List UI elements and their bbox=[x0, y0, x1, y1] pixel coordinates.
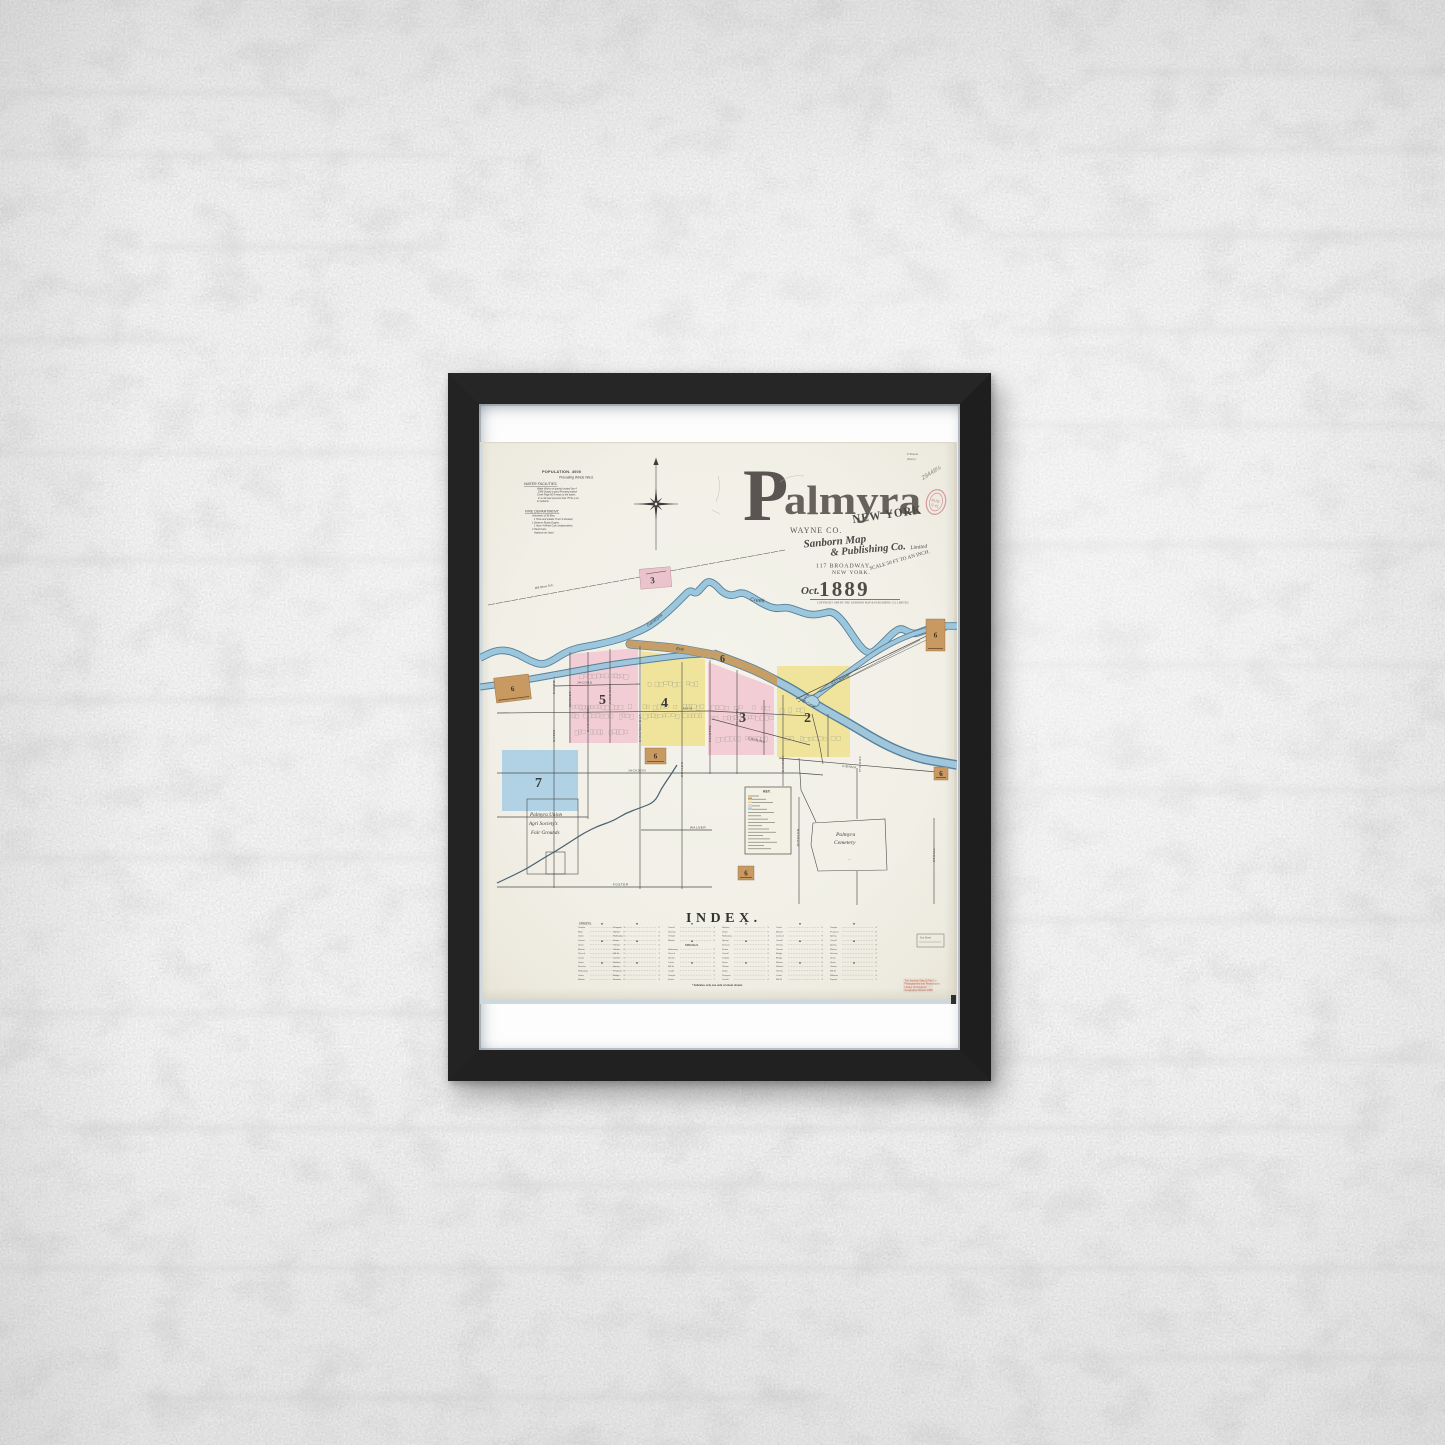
svg-text:FOSTER: FOSTER bbox=[613, 883, 629, 887]
svg-text:Clinton: Clinton bbox=[722, 965, 730, 968]
svg-text:Erie: Erie bbox=[676, 646, 685, 652]
svg-text:Stuart: Stuart bbox=[613, 939, 619, 942]
svg-text:Geography Division 1950: Geography Division 1950 bbox=[905, 989, 934, 992]
svg-text:COPYRIGHT 1889 BY THE SANBORN: COPYRIGHT 1889 BY THE SANBORN MAP & PUBL… bbox=[817, 602, 909, 605]
svg-text:Canal: Canal bbox=[776, 927, 782, 929]
svg-text:Union: Union bbox=[830, 962, 836, 964]
svg-text:MARKET: MARKET bbox=[568, 691, 572, 707]
svg-text:Williams: Williams bbox=[830, 975, 839, 977]
svg-text:Vienna: Vienna bbox=[776, 949, 784, 951]
svg-text:Prospect: Prospect bbox=[830, 930, 839, 933]
svg-text:Carroll: Carroll bbox=[776, 939, 783, 942]
svg-text:Cemetery: Cemetery bbox=[834, 840, 856, 846]
svg-text:6: 6 bbox=[720, 654, 725, 665]
svg-text:Spring: Spring bbox=[830, 935, 837, 938]
svg-text:Vienna: Vienna bbox=[613, 944, 621, 946]
svg-text:POPULATION. 4000: POPULATION. 4000 bbox=[542, 469, 581, 474]
svg-text:Market: Market bbox=[578, 948, 585, 951]
svg-text:CANANDAIGUA: CANANDAIGUA bbox=[638, 713, 642, 742]
svg-text:JACOBS: JACOBS bbox=[577, 681, 592, 685]
svg-text:CHURCH: CHURCH bbox=[781, 756, 785, 772]
svg-text:FAYETTE: FAYETTE bbox=[708, 725, 712, 742]
svg-text:Hathaway: Hathaway bbox=[668, 948, 679, 951]
svg-text:Market: Market bbox=[668, 939, 675, 942]
svg-text:117 BROADWAY: 117 BROADWAY bbox=[816, 564, 870, 570]
svg-text:Carroll: Carroll bbox=[613, 957, 620, 960]
svg-text:Gates: Gates bbox=[578, 935, 585, 938]
svg-text:Bridge: Bridge bbox=[613, 974, 620, 977]
svg-text:Union: Union bbox=[578, 944, 584, 946]
svg-text:Carroll: Carroll bbox=[722, 952, 729, 955]
svg-text:Temple: Temple bbox=[578, 927, 586, 929]
svg-text:KEY.: KEY. bbox=[763, 790, 771, 794]
svg-text:Gates: Gates bbox=[578, 961, 585, 964]
svg-text:Hydrants etc hand.: Hydrants etc hand. bbox=[534, 532, 554, 535]
svg-text:6: 6 bbox=[654, 753, 658, 761]
svg-text:Carroll: Carroll bbox=[722, 978, 729, 981]
svg-text:Market: Market bbox=[776, 961, 783, 964]
svg-text:Prospect: Prospect bbox=[613, 926, 622, 929]
svg-text:Bridge: Bridge bbox=[776, 957, 783, 960]
svg-text:Mill St: Mill St bbox=[668, 965, 674, 968]
svg-text:P: P bbox=[743, 455, 788, 537]
svg-text:7: 7 bbox=[535, 776, 542, 791]
svg-text:WASHINGTON: WASHINGTON bbox=[586, 706, 590, 732]
svg-text:FIRE DEPARTMENT.: FIRE DEPARTMENT. bbox=[525, 510, 559, 514]
svg-text:SPECIALS.: SPECIALS. bbox=[685, 943, 699, 947]
svg-text:Foster: Foster bbox=[668, 978, 674, 981]
svg-text:—: — bbox=[847, 857, 851, 861]
svg-text:Canal: Canal bbox=[776, 975, 782, 977]
svg-text:Division: Division bbox=[668, 931, 676, 933]
svg-text:1889: 1889 bbox=[819, 577, 870, 601]
svg-text:JACKSON: JACKSON bbox=[628, 769, 646, 773]
svg-text:Carroll: Carroll bbox=[830, 939, 837, 942]
svg-text:Temple: Temple bbox=[722, 958, 730, 960]
svg-text:Vienna: Vienna bbox=[776, 971, 784, 973]
svg-text:WAYNE CO.: WAYNE CO. bbox=[790, 526, 842, 535]
svg-text:Palmyra Union: Palmyra Union bbox=[529, 812, 563, 818]
svg-text:Division: Division bbox=[578, 966, 586, 968]
svg-text:Temple: Temple bbox=[668, 975, 676, 977]
svg-text:Prospect: Prospect bbox=[613, 970, 622, 973]
svg-text:6 Sheets: 6 Sheets bbox=[907, 452, 919, 456]
svg-text:Spring: Spring bbox=[722, 939, 729, 942]
svg-text:Holmes: Holmes bbox=[722, 927, 730, 929]
svg-text:STREETS.: STREETS. bbox=[579, 922, 592, 926]
svg-text:Division: Division bbox=[722, 944, 730, 946]
svg-text:Walnut: Walnut bbox=[830, 948, 837, 951]
svg-text:Temple: Temple bbox=[668, 936, 676, 938]
svg-text:Foster: Foster bbox=[722, 948, 728, 951]
svg-text:Union: Union bbox=[830, 958, 836, 960]
svg-text:Market: Market bbox=[578, 978, 585, 981]
svg-text:Vienna: Vienna bbox=[578, 940, 586, 942]
svg-text:Prospect: Prospect bbox=[722, 974, 731, 977]
svg-text:Spring: Spring bbox=[830, 943, 837, 946]
svg-text:* Indicates only one side of s: * Indicates only one side of street show… bbox=[692, 983, 743, 987]
svg-text:Clinton: Clinton bbox=[830, 965, 838, 968]
svg-text:Carroll: Carroll bbox=[668, 926, 675, 929]
svg-text:THROOP: THROOP bbox=[858, 756, 862, 772]
svg-text:WATER FACILITIES.: WATER FACILITIES. bbox=[524, 482, 558, 486]
svg-text:Canal: Canal bbox=[578, 958, 584, 960]
svg-text:Church: Church bbox=[668, 952, 676, 955]
svg-text:Cuyler: Cuyler bbox=[668, 970, 675, 973]
svg-text:Clinton: Clinton bbox=[613, 930, 621, 933]
svg-text:Division: Division bbox=[830, 953, 838, 955]
svg-text:3: 3 bbox=[739, 711, 746, 726]
svg-text:Gates: Gates bbox=[722, 970, 729, 973]
svg-text:CARROLL: CARROLL bbox=[552, 676, 556, 694]
svg-text:STUALL: STUALL bbox=[932, 847, 936, 862]
svg-text:Fayette: Fayette bbox=[830, 978, 838, 981]
svg-text:MAIN: MAIN bbox=[683, 707, 693, 711]
svg-text:GATES: GATES bbox=[552, 729, 556, 742]
svg-text:Holmes: Holmes bbox=[613, 962, 621, 964]
svg-text:Gates: Gates bbox=[578, 974, 585, 977]
svg-text:WALNER: WALNER bbox=[690, 826, 706, 830]
svg-text:Bridge: Bridge bbox=[776, 952, 783, 955]
svg-text:Prevailing Winds West.: Prevailing Winds West. bbox=[559, 476, 594, 480]
svg-text:Union: Union bbox=[722, 931, 728, 933]
svg-text:4: 4 bbox=[661, 696, 668, 711]
svg-text:Clinton: Clinton bbox=[668, 957, 676, 960]
svg-text:HARRISON: HARRISON bbox=[608, 684, 612, 704]
svg-text:Church: Church bbox=[578, 952, 586, 955]
svg-text:Palmyra: Palmyra bbox=[835, 832, 855, 838]
svg-text:CUYLER: CUYLER bbox=[680, 761, 684, 777]
svg-text:Spring: Spring bbox=[613, 965, 620, 968]
svg-text:5: 5 bbox=[599, 693, 606, 708]
svg-text:Mill St: Mill St bbox=[613, 952, 619, 955]
svg-text:6: 6 bbox=[744, 870, 748, 878]
svg-text:Mill St: Mill St bbox=[830, 970, 836, 973]
svg-text:Temple: Temple bbox=[830, 927, 838, 929]
svg-text:Clinton: Clinton bbox=[613, 948, 621, 951]
svg-text:Jackson: Jackson bbox=[776, 936, 785, 938]
svg-text:Main: Main bbox=[578, 931, 584, 933]
svg-text:6: 6 bbox=[934, 632, 938, 640]
svg-text:Union: Union bbox=[722, 962, 728, 964]
svg-text:Hathaway: Hathaway bbox=[722, 935, 733, 938]
svg-text:Key Sheet: Key Sheet bbox=[920, 937, 931, 940]
svg-text:in hydrants.: in hydrants. bbox=[537, 500, 550, 503]
svg-text:Vienna: Vienna bbox=[776, 944, 784, 946]
svg-text:Canal: Canal bbox=[668, 962, 674, 964]
svg-text:(None): (None) bbox=[907, 457, 916, 461]
svg-text:Fair Grounds: Fair Grounds bbox=[530, 830, 560, 836]
svg-text:6: 6 bbox=[939, 770, 943, 778]
svg-text:Oct.: Oct. bbox=[801, 585, 820, 597]
svg-text:NEW YORK.: NEW YORK. bbox=[832, 570, 871, 576]
svg-text:JOHNSON: JOHNSON bbox=[796, 828, 800, 847]
svg-text:Market: Market bbox=[776, 930, 783, 933]
svg-text:Hathaway: Hathaway bbox=[613, 935, 624, 938]
svg-text:Holmes: Holmes bbox=[776, 966, 784, 968]
svg-text:Mill St: Mill St bbox=[776, 978, 782, 981]
svg-text:Division: Division bbox=[613, 979, 621, 981]
svg-text:Hathaway: Hathaway bbox=[578, 970, 589, 973]
svg-text:INDEX.: INDEX. bbox=[686, 911, 762, 926]
svg-text:2: 2 bbox=[804, 711, 811, 726]
svg-text:Agri Society’s: Agri Society’s bbox=[528, 821, 558, 827]
